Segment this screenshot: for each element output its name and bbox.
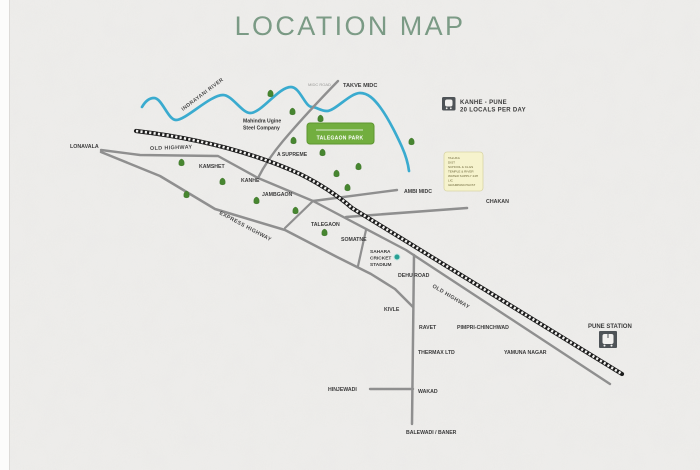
- svg-text:YAMUNA NAGAR: YAMUNA NAGAR: [504, 350, 547, 356]
- svg-text:LIC: LIC: [448, 179, 454, 183]
- svg-text:KIVLE: KIVLE: [384, 307, 400, 313]
- svg-text:MIDC ROAD: MIDC ROAD: [308, 82, 331, 87]
- svg-text:CRICKET: CRICKET: [370, 256, 391, 262]
- svg-text:Steel Company: Steel Company: [243, 126, 280, 132]
- svg-text:A SUPREME: A SUPREME: [277, 152, 308, 158]
- svg-text:KANHE: KANHE: [241, 178, 260, 184]
- svg-text:KANHE - PUNE: KANHE - PUNE: [460, 100, 507, 106]
- svg-text:PUNE STATION: PUNE STATION: [588, 324, 632, 330]
- svg-text:DIST: DIST: [448, 161, 455, 165]
- svg-text:TALEGAON PARK: TALEGAON PARK: [317, 136, 364, 142]
- svg-text:JAMBGAON: JAMBGAON: [262, 192, 293, 198]
- svg-text:CHAKAN: CHAKAN: [486, 199, 509, 205]
- svg-text:TAKVE MIDC: TAKVE MIDC: [343, 83, 377, 89]
- svg-text:LONAVALA: LONAVALA: [70, 144, 99, 150]
- svg-text:AMBI MIDC: AMBI MIDC: [404, 189, 432, 195]
- svg-text:HINJEWADI: HINJEWADI: [328, 387, 357, 393]
- svg-text:SAHARA: SAHARA: [370, 249, 391, 255]
- svg-text:Mahindra Ugine: Mahindra Ugine: [243, 119, 281, 125]
- svg-text:STADIUM: STADIUM: [370, 262, 392, 268]
- svg-text:WATER SUPPLY 24H: WATER SUPPLY 24H: [448, 174, 478, 178]
- svg-text:TALEGAON: TALEGAON: [311, 222, 340, 228]
- svg-text:PIMPRI-CHINCHWAD: PIMPRI-CHINCHWAD: [457, 325, 509, 331]
- svg-text:SCHOOL & CLGS: SCHOOL & CLGS: [448, 165, 473, 169]
- svg-text:THERMAX LTD: THERMAX LTD: [418, 350, 455, 356]
- svg-text:RAVET: RAVET: [419, 325, 437, 331]
- svg-text:TEMPLE & RIVER: TEMPLE & RIVER: [448, 170, 474, 174]
- svg-text:KAMSHET: KAMSHET: [199, 164, 225, 170]
- svg-text:20 LOCALS PER DAY: 20 LOCALS PER DAY: [460, 108, 526, 114]
- svg-text:DEHU ROAD: DEHU ROAD: [398, 273, 430, 279]
- svg-text:SOMATNE: SOMATNE: [341, 237, 367, 243]
- svg-text:WAKAD: WAKAD: [418, 389, 438, 395]
- svg-text:GRAMPANCHAYAT: GRAMPANCHAYAT: [448, 183, 475, 187]
- svg-text:BALEWADI / BANER: BALEWADI / BANER: [406, 430, 457, 436]
- svg-text:TALUKA: TALUKA: [448, 156, 461, 160]
